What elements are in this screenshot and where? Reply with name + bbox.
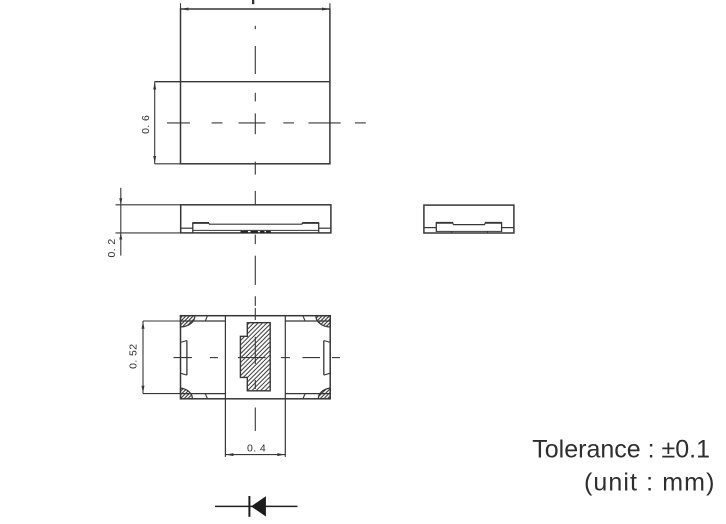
svg-text:0. 4: 0. 4	[247, 443, 266, 455]
svg-text:0. 2: 0. 2	[106, 238, 118, 257]
svg-text:0. 6: 0. 6	[140, 115, 152, 134]
svg-text:Tolerance : ±0.1: Tolerance : ±0.1	[532, 436, 710, 464]
svg-text:(unit : mm): (unit : mm)	[584, 469, 716, 497]
svg-text:0. 52: 0. 52	[128, 344, 140, 369]
